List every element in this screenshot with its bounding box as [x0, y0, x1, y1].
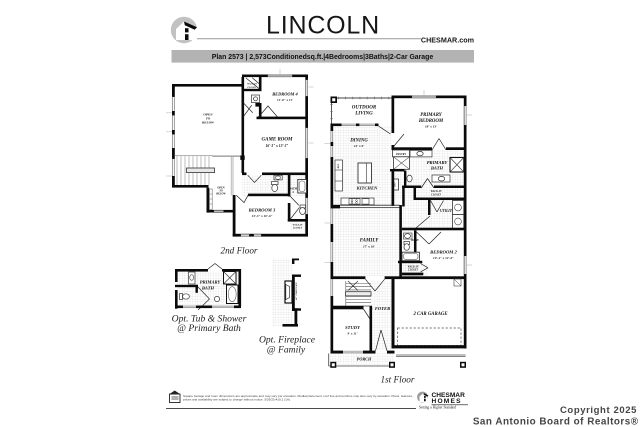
- svg-text:Plan 2573 | 2,573Conditionedsq: Plan 2573 | 2,573Conditionedsq.ft.|4Bedr…: [212, 54, 434, 61]
- svg-text:PANTRY: PANTRY: [396, 153, 406, 156]
- svg-text:2 CAR GARAGE: 2 CAR GARAGE: [412, 312, 447, 317]
- svg-text:LIVING: LIVING: [354, 112, 373, 117]
- svg-text:CLOSET: CLOSET: [431, 194, 441, 197]
- svg-text:CLOSET: CLOSET: [293, 227, 303, 230]
- svg-text:PRIMARY: PRIMARY: [420, 113, 443, 118]
- svg-text:prices and availability are su: prices and availability are subject to c…: [183, 398, 290, 402]
- svg-text:CHESMAR.com: CHESMAR.com: [421, 36, 474, 45]
- svg-text:San Antonio Board of Realtors®: San Antonio Board of Realtors®: [473, 417, 639, 427]
- svg-text:OUTDOOR: OUTDOOR: [352, 106, 377, 111]
- svg-text:BATH: BATH: [430, 166, 444, 171]
- svg-text:@ Family: @ Family: [267, 345, 306, 356]
- svg-text:Setting a Higher Standard: Setting a Higher Standard: [419, 405, 456, 409]
- svg-text:42" FIREPLACE: 42" FIREPLACE: [295, 282, 298, 301]
- svg-text:16'-3" x 13'-2": 16'-3" x 13'-2": [266, 144, 289, 148]
- svg-text:12' x 9': 12' x 9': [354, 144, 364, 148]
- svg-text:BELOW: BELOW: [201, 120, 215, 124]
- svg-text:PRIMARY: PRIMARY: [200, 280, 222, 285]
- svg-text:PORCH: PORCH: [357, 357, 372, 362]
- svg-text:1st Floor: 1st Floor: [381, 375, 415, 385]
- svg-text:CLOSET: CLOSET: [408, 269, 418, 272]
- svg-text:BEDROOM 2: BEDROOM 2: [429, 250, 457, 255]
- svg-text:18' x 13': 18' x 13': [425, 125, 437, 129]
- svg-text:10'-4" x 12'-6": 10'-4" x 12'-6": [433, 256, 454, 260]
- svg-text:2nd Floor: 2nd Floor: [220, 246, 257, 256]
- svg-text:KITCHEN: KITCHEN: [356, 186, 378, 191]
- svg-text:GAME ROOM: GAME ROOM: [262, 138, 294, 143]
- svg-text:9' x 11': 9' x 11': [348, 331, 358, 335]
- svg-text:BATH: BATH: [201, 286, 215, 291]
- svg-text:FAMILY: FAMILY: [360, 239, 379, 244]
- svg-text:BEDROOM 4: BEDROOM 4: [271, 92, 298, 97]
- svg-text:FOYER: FOYER: [375, 306, 390, 311]
- svg-text:LINCOLN: LINCOLN: [266, 11, 380, 39]
- svg-text:@ Primary Bath: @ Primary Bath: [177, 323, 241, 334]
- svg-text:BEDROOM: BEDROOM: [418, 119, 444, 124]
- svg-text:HOMES: HOMES: [432, 398, 462, 405]
- svg-text:13'-3" x 10'-6": 13'-3" x 10'-6": [252, 214, 273, 218]
- svg-text:DINING: DINING: [349, 139, 368, 144]
- svg-text:17' x 16': 17' x 16': [363, 245, 375, 249]
- svg-text:11'-8" x 11': 11'-8" x 11': [277, 98, 293, 102]
- svg-text:BELOW: BELOW: [215, 193, 226, 196]
- svg-text:BEDROOM 3: BEDROOM 3: [248, 208, 276, 213]
- svg-text:PRIMARY: PRIMARY: [427, 160, 449, 165]
- svg-text:STUDY: STUDY: [345, 325, 361, 330]
- svg-text:Copyright 2025: Copyright 2025: [560, 405, 637, 416]
- svg-text:REF.: REF.: [338, 163, 340, 168]
